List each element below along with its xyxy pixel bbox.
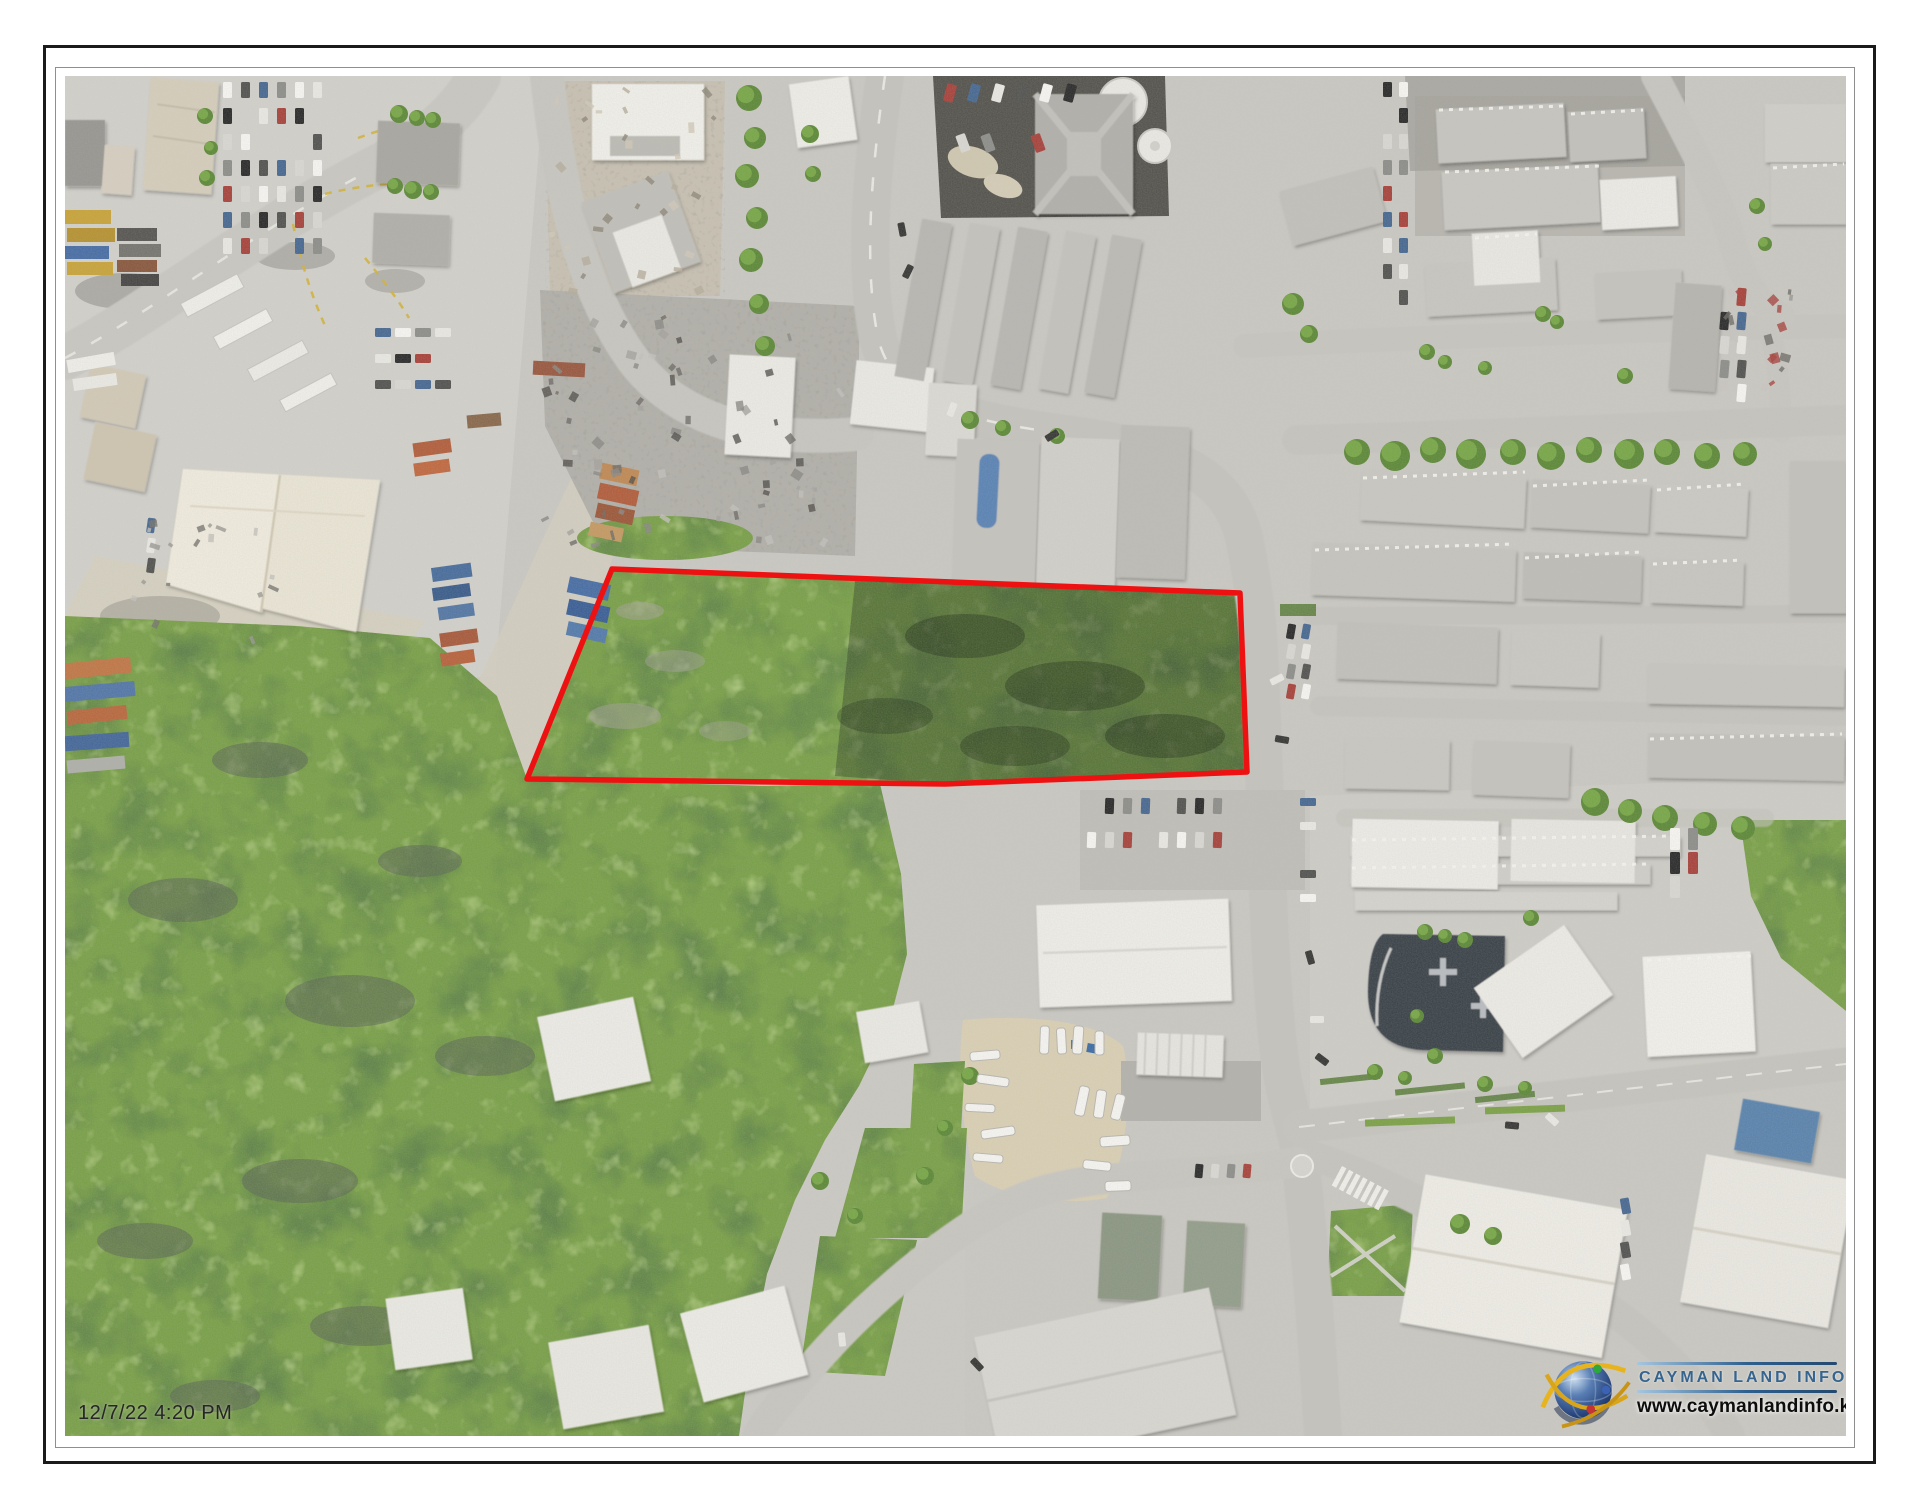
aerial-photo: 12/7/22 4:20 PM CAYMAN LAND INFO www.cay… [65,76,1846,1436]
logo-title: CAYMAN LAND INFO [1637,1365,1837,1390]
cayman-land-info-logo: CAYMAN LAND INFO www.caymanlandinfo.ky [1537,1344,1839,1436]
aerial-photo-canvas [65,76,1846,1436]
capture-timestamp: 12/7/22 4:20 PM [78,1402,232,1425]
logo-url: www.caymanlandinfo.ky [1637,1393,1837,1418]
photo-grain [65,76,1846,1436]
globe-icon [1537,1342,1633,1436]
